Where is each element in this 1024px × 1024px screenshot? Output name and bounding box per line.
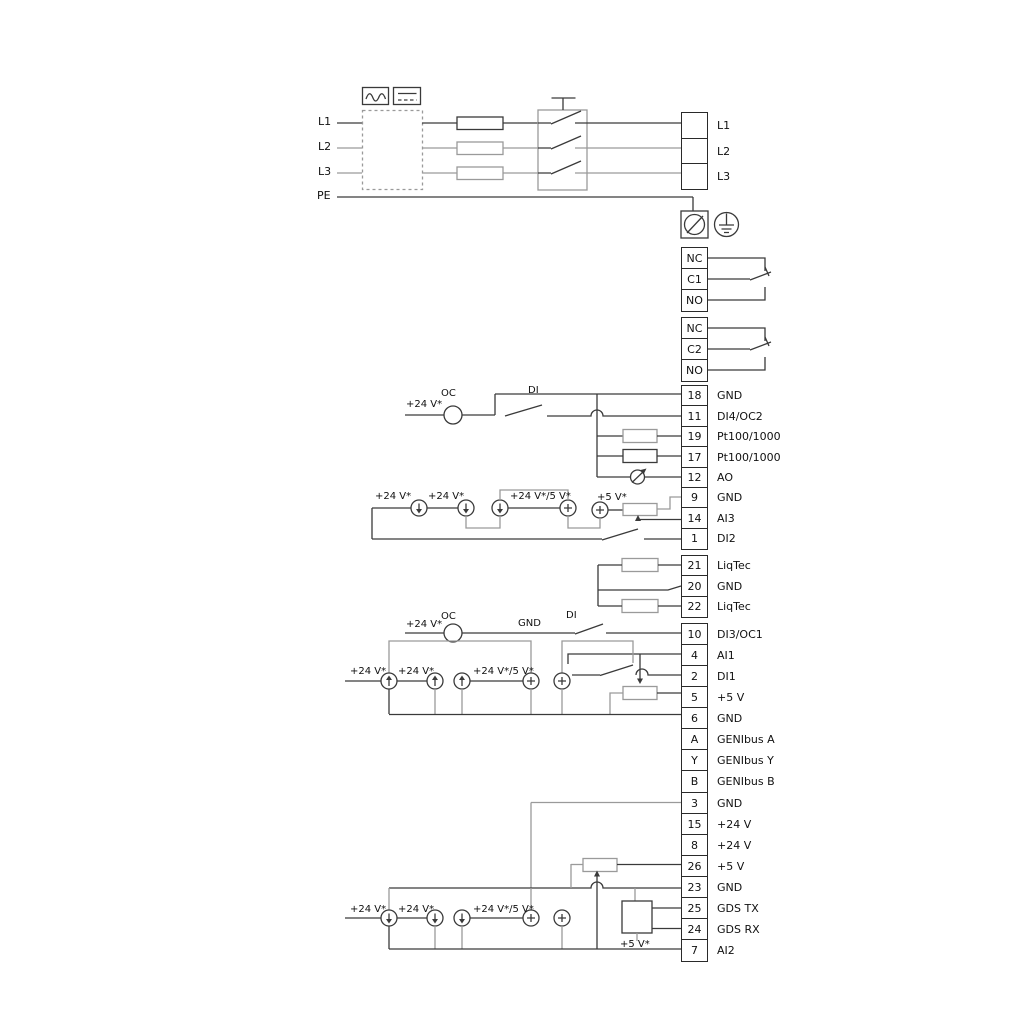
terminal-number-cell: 7	[681, 939, 708, 962]
supply-label: +24 V*	[406, 619, 442, 630]
terminal-number-cell: 23	[681, 876, 708, 899]
dc-icon	[394, 88, 421, 105]
terminal-number-cell	[681, 138, 708, 165]
oc-label: OC	[441, 611, 456, 622]
supply-label: +24 V*/5 V*	[510, 491, 571, 502]
di3-circuit	[405, 624, 681, 642]
terminal-row: YGENIbus Y	[681, 749, 821, 772]
terminal-number-cell: A	[681, 728, 708, 751]
terminal-number-cell: 4	[681, 644, 708, 667]
terminal-number-cell: NO	[681, 289, 708, 312]
ai1-sensor-options	[345, 641, 681, 715]
terminal-row: 3GND	[681, 792, 821, 815]
supply-label: +24 V*	[428, 491, 464, 502]
terminal-row: 15+24 V	[681, 813, 821, 836]
pt100-circuit	[597, 430, 681, 463]
filter-box	[363, 111, 423, 190]
terminal-number-cell: 5	[681, 686, 708, 709]
terminal-row: AGENIbus A	[681, 728, 821, 751]
terminal-number-cell: 6	[681, 707, 708, 730]
terminal-number-cell: 11	[681, 405, 708, 427]
di2-switch-icon	[602, 529, 638, 540]
terminal-number-cell	[681, 163, 708, 190]
oc-label: OC	[441, 388, 456, 399]
potentiometer-icon	[623, 687, 657, 700]
terminal-label: L1	[717, 112, 730, 139]
terminal-number-cell: 10	[681, 623, 708, 646]
fuse-icon	[457, 142, 503, 155]
terminal-number-cell: 2	[681, 665, 708, 688]
terminal-number-cell: NC	[681, 247, 708, 270]
terminal-label: GENIbus B	[717, 770, 775, 793]
di-label: DI	[566, 610, 577, 621]
fuse-icon	[457, 117, 503, 130]
terminal-number-cell: 14	[681, 507, 708, 529]
ac-icon	[363, 88, 389, 105]
terminal-label: GENIbus A	[717, 728, 775, 751]
terminal-row: BGENIbus B	[681, 770, 821, 793]
terminal-label: GND	[717, 792, 742, 815]
terminal-row: NO	[681, 289, 821, 312]
terminal-number-cell: B	[681, 770, 708, 793]
supply-label: +24 V*	[375, 491, 411, 502]
terminal-row: NO	[681, 359, 821, 382]
supply-label: +24 V*	[398, 666, 434, 677]
fuse-icon	[457, 167, 503, 180]
di4-switch-icon	[505, 405, 542, 416]
wiring-diagram-page: L1 L2 L3 PE +24 V* OC DI +24 V* +24 V* +…	[0, 0, 1024, 1024]
terminal-row: C2	[681, 338, 821, 361]
terminal-row: 21LiqTec	[681, 555, 821, 577]
screw-terminal-icon	[681, 211, 708, 238]
terminal-label: GND	[717, 487, 742, 509]
terminal-number-cell: C1	[681, 268, 708, 291]
terminal-number-cell	[681, 112, 708, 139]
terminal-number-cell: NC	[681, 317, 708, 340]
terminal-row: 12AO	[681, 467, 821, 489]
terminal-label: DI4/OC2	[717, 405, 763, 427]
supply-label: +5 V*	[620, 939, 650, 950]
resistor-icon	[623, 450, 657, 463]
mains-label-l2: L2	[318, 141, 331, 153]
terminal-label: DI3/OC1	[717, 623, 763, 646]
resistor-icon	[622, 600, 658, 613]
terminal-row: 6GND	[681, 707, 821, 730]
earth-ground-icon	[715, 213, 739, 237]
terminal-row: 5+5 V	[681, 686, 821, 709]
mains-label-l3: L3	[318, 166, 331, 178]
terminal-row: 20GND	[681, 575, 821, 597]
supply-label: +24 V*	[350, 666, 386, 677]
liqtec-circuit	[598, 559, 681, 613]
terminal-number-cell: 3	[681, 792, 708, 815]
terminal-label: DI1	[717, 665, 736, 688]
terminal-row: L2	[681, 138, 821, 165]
resistor-icon	[623, 430, 657, 443]
terminal-number-cell: 1	[681, 528, 708, 550]
terminal-number-cell: 24	[681, 918, 708, 941]
open-collector-icon	[444, 406, 462, 424]
terminal-label: +5 V	[717, 686, 744, 709]
terminal-label: +24 V	[717, 813, 751, 836]
terminal-row: 19Pt100/1000	[681, 426, 821, 448]
terminal-label: DI2	[717, 528, 736, 550]
terminal-row: 26+5 V	[681, 855, 821, 878]
terminal-label: GND	[717, 575, 742, 597]
terminal-row: 22LiqTec	[681, 596, 821, 618]
terminal-row: 8+24 V	[681, 834, 821, 857]
di3-switch-icon	[575, 624, 603, 634]
gds-sensor-box	[622, 901, 652, 933]
terminal-label: +24 V	[717, 834, 751, 857]
terminal-label: GND	[717, 876, 742, 899]
terminal-row: 14AI3	[681, 507, 821, 529]
supply-label: +24 V*/5 V*	[473, 666, 534, 677]
analog-output-circuit	[597, 469, 681, 485]
terminal-row: 24GDS RX	[681, 918, 821, 941]
terminal-label: AI2	[717, 939, 735, 962]
supply-label: +24 V*	[406, 399, 442, 410]
resistor-icon	[622, 559, 658, 572]
terminal-label: LiqTec	[717, 596, 751, 618]
terminal-number-cell: 17	[681, 446, 708, 468]
terminal-row: 17Pt100/1000	[681, 446, 821, 468]
terminal-number-cell: 18	[681, 385, 708, 407]
terminal-row: 9GND	[681, 487, 821, 509]
terminal-number-cell: 12	[681, 467, 708, 489]
terminal-label: GND	[717, 385, 742, 407]
wiring-diagram-canvas	[0, 0, 1024, 1024]
terminal-label: Pt100/1000	[717, 446, 781, 468]
terminal-label: AO	[717, 467, 733, 489]
di4-circuit	[405, 394, 681, 477]
terminal-label: GENIbus Y	[717, 749, 774, 772]
terminal-label: LiqTec	[717, 555, 751, 577]
di-label: DI	[528, 385, 539, 396]
gnd-label: GND	[518, 618, 541, 629]
terminal-label: GDS RX	[717, 918, 760, 941]
terminal-row: L3	[681, 163, 821, 190]
terminal-row: L1	[681, 112, 821, 139]
supply-label: +24 V*/5 V*	[473, 904, 534, 915]
terminal-label: AI1	[717, 644, 735, 667]
supply-label: +24 V*	[350, 904, 386, 915]
terminal-row: 10DI3/OC1	[681, 623, 821, 646]
terminal-number-cell: 9	[681, 487, 708, 509]
terminal-number-cell: 15	[681, 813, 708, 836]
terminal-label: AI3	[717, 507, 735, 529]
terminal-row: 1DI2	[681, 528, 821, 550]
terminal-number-cell: C2	[681, 338, 708, 361]
terminal-row: NC	[681, 317, 821, 340]
terminal-label: GDS TX	[717, 897, 759, 920]
terminal-number-cell: 25	[681, 897, 708, 920]
terminal-number-cell: 26	[681, 855, 708, 878]
terminal-number-cell: 22	[681, 596, 708, 618]
terminal-label: L3	[717, 163, 730, 190]
terminal-row: 2DI1	[681, 665, 821, 688]
supply-label: +24 V*	[398, 904, 434, 915]
terminal-label: L2	[717, 138, 730, 165]
pe-wire	[337, 197, 693, 211]
potentiometer-icon	[583, 859, 617, 872]
mains-label-pe: PE	[317, 190, 331, 202]
mains-label-l1: L1	[318, 116, 331, 128]
terminal-row: 11DI4/OC2	[681, 405, 821, 427]
terminal-number-cell: Y	[681, 749, 708, 772]
terminal-label: GND	[717, 707, 742, 730]
terminal-row: 18GND	[681, 385, 821, 407]
ai2-sensor-options	[345, 803, 681, 950]
open-collector-icon	[444, 624, 462, 642]
terminal-number-cell: 19	[681, 426, 708, 448]
terminal-number-cell: 20	[681, 575, 708, 597]
main-switch-icon	[538, 98, 587, 190]
terminal-number-cell: 21	[681, 555, 708, 577]
terminal-row: 7AI2	[681, 939, 821, 962]
terminal-label: Pt100/1000	[717, 426, 781, 448]
terminal-row: 23GND	[681, 876, 821, 899]
di1-switch-icon	[600, 665, 633, 676]
terminal-row: 25GDS TX	[681, 897, 821, 920]
terminal-label: +5 V	[717, 855, 744, 878]
mains-wiring	[337, 88, 739, 239]
terminal-number-cell: NO	[681, 359, 708, 382]
potentiometer-icon	[623, 504, 657, 516]
supply-label: +5 V*	[597, 492, 627, 503]
terminal-row: NC	[681, 247, 821, 270]
terminal-number-cell: 8	[681, 834, 708, 857]
terminal-row: 4AI1	[681, 644, 821, 667]
terminal-row: C1	[681, 268, 821, 291]
